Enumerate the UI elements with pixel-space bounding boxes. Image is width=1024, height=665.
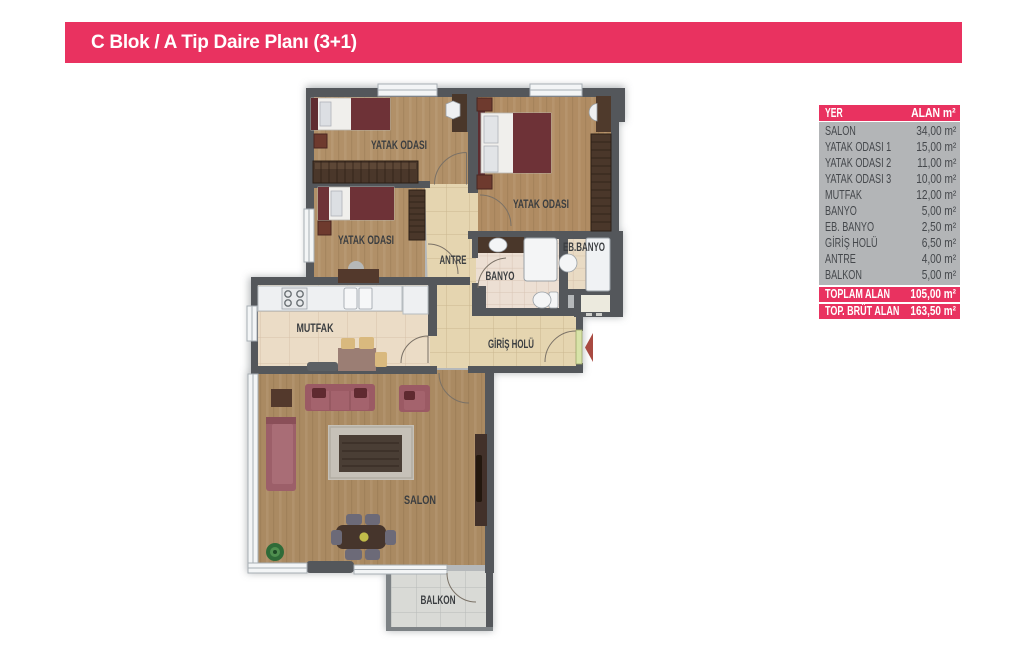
svg-text:MUTFAK: MUTFAK [297, 321, 334, 335]
svg-text:ANTRE: ANTRE [440, 253, 467, 267]
svg-text:EB.BANYO: EB.BANYO [563, 240, 605, 254]
svg-text:YATAK ODASI: YATAK ODASI [338, 233, 394, 247]
svg-text:YATAK ODASI: YATAK ODASI [371, 138, 427, 152]
svg-text:GİRİŞ HOLÜ: GİRİŞ HOLÜ [488, 336, 534, 351]
svg-text:BANYO: BANYO [486, 269, 515, 283]
svg-text:YATAK ODASI: YATAK ODASI [513, 197, 569, 211]
svg-text:SALON: SALON [404, 493, 436, 507]
svg-text:BALKON: BALKON [421, 593, 456, 607]
